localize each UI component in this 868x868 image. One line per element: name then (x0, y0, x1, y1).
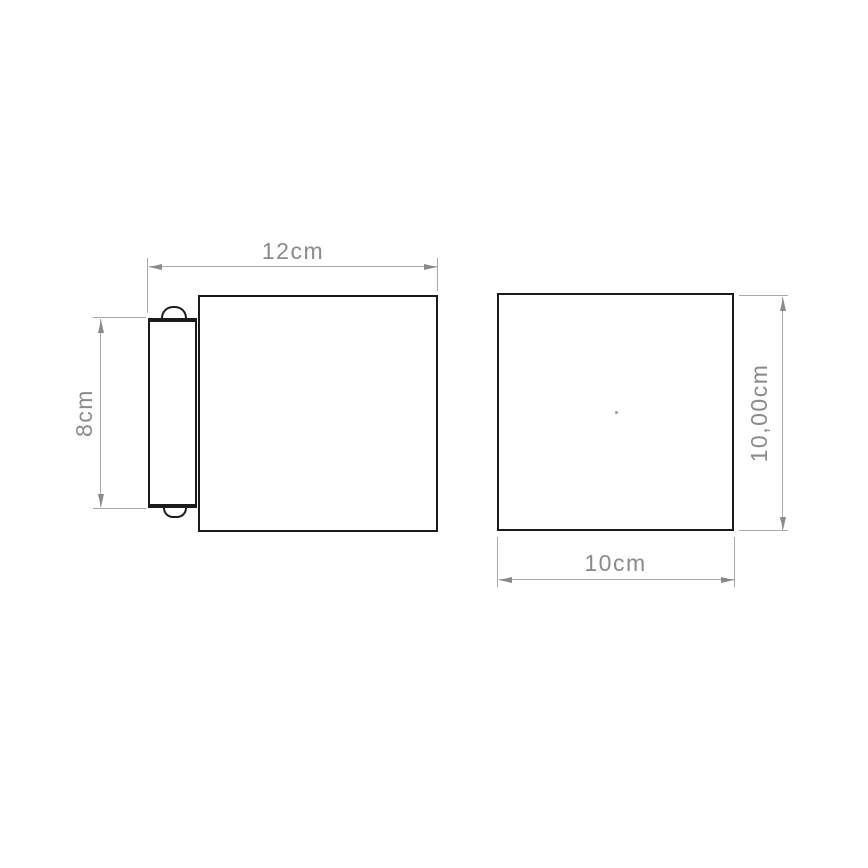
arrowhead-front-width-right (721, 577, 734, 583)
dimension-label-front-width: 10cm (497, 550, 734, 576)
extension-line-12cm-left (147, 258, 148, 313)
dimension-line-8cm (100, 319, 101, 507)
dimension-line-12cm (149, 266, 437, 267)
extension-line-8cm-top (93, 317, 146, 318)
arrowhead-8cm-bottom (98, 494, 104, 507)
extension-line-height-top (739, 295, 788, 296)
arrowhead-front-height-bottom (780, 517, 786, 530)
dimension-label-front-height: 10,00cm (746, 351, 772, 475)
mounting-screw-top (161, 306, 187, 318)
arrowhead-8cm-top (98, 320, 104, 333)
arrowhead-front-width-left (499, 577, 512, 583)
extension-line-height-bottom (739, 530, 788, 531)
wall-mount-bracket (148, 318, 197, 508)
arrowhead-front-height-top (780, 298, 786, 311)
dimension-line-front-height (782, 297, 783, 530)
side-view-body-outline (198, 295, 438, 532)
center-mark-dot (615, 411, 618, 414)
technical-drawing-canvas: 12cm 8cm 10,00cm 10cm (0, 0, 868, 868)
extension-line-8cm-bottom (93, 508, 146, 509)
mounting-screw-bottom (163, 508, 187, 518)
extension-line-width-right (734, 537, 735, 587)
dimension-line-front-width (499, 579, 734, 580)
arrowhead-12cm-left (149, 264, 162, 270)
dimension-label-side-width: 12cm (148, 238, 438, 264)
dimension-label-side-height: 8cm (71, 373, 97, 453)
arrowhead-12cm-right (424, 264, 437, 270)
